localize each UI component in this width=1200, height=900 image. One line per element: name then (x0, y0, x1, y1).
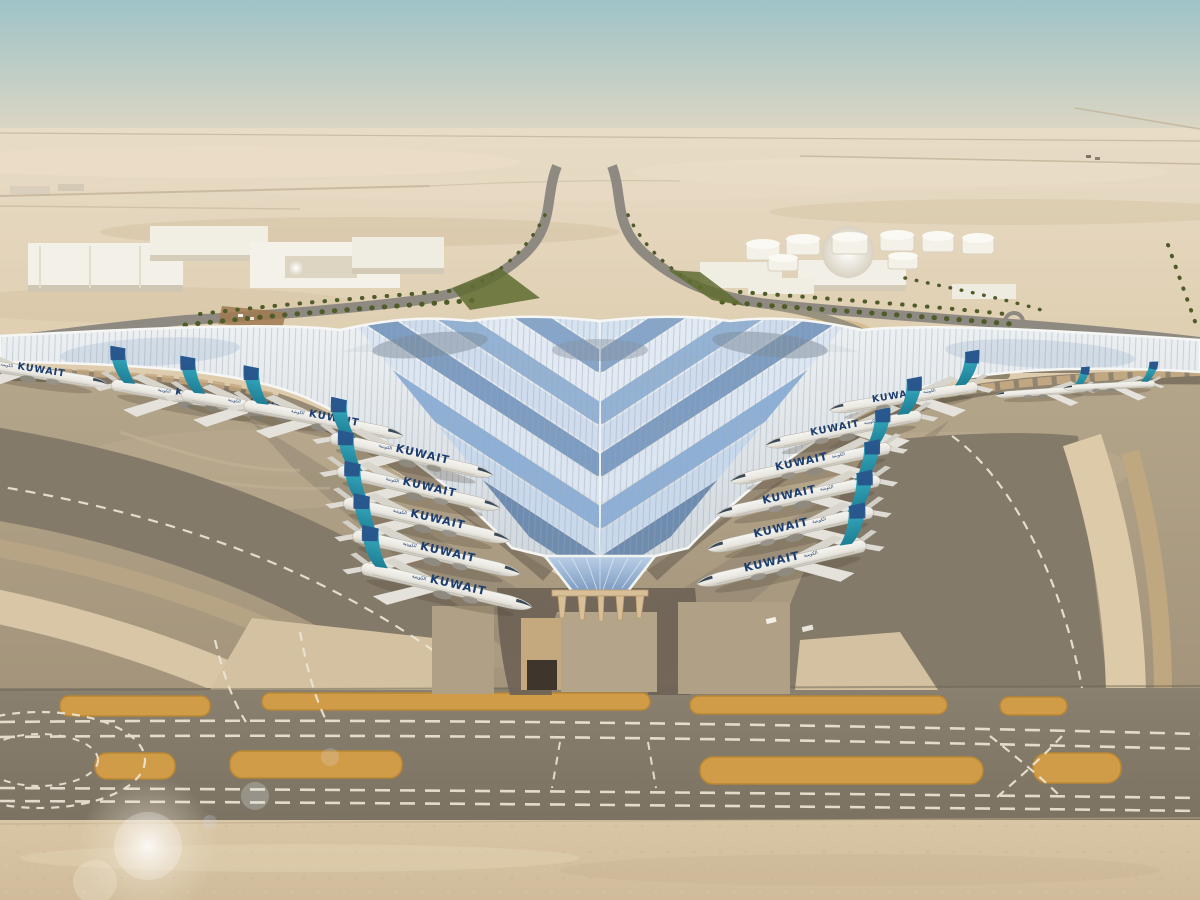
airport-rendering: KUWAIT الكويتية KUWAIT الكويتية KUWAIT ا… (0, 0, 1200, 900)
scene-canvas: KUWAIT الكويتية KUWAIT الكويتية KUWAIT ا… (0, 0, 1200, 900)
sky (0, 0, 1200, 150)
sky-gradient (0, 0, 1200, 150)
